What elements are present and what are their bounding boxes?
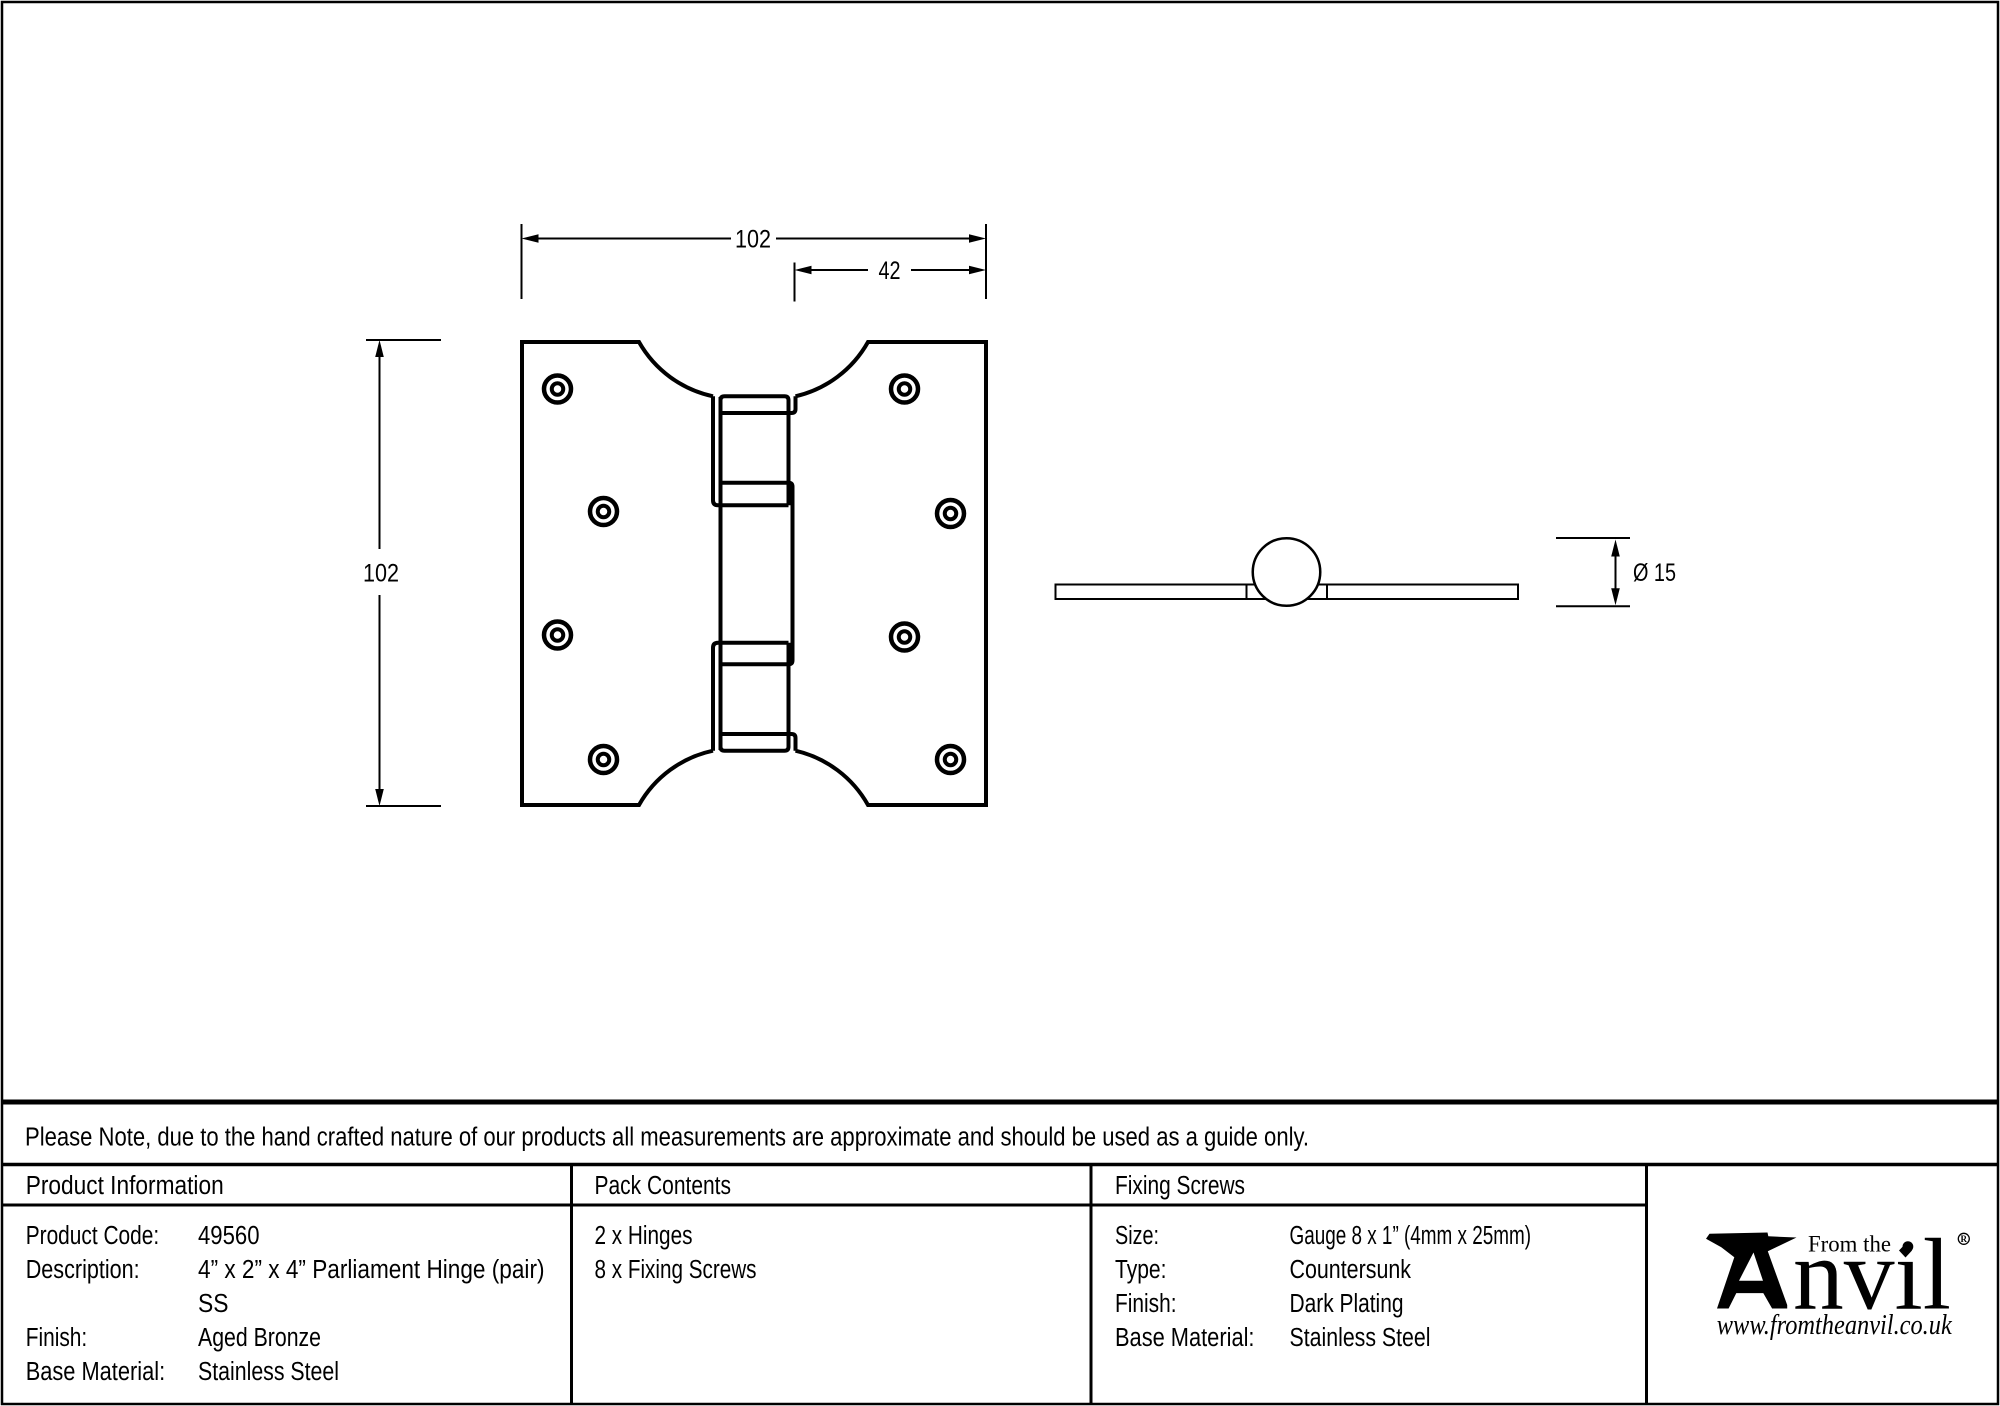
svg-text:Ø 15: Ø 15 xyxy=(1633,559,1676,587)
svg-text:Base Material:: Base Material: xyxy=(26,1358,166,1386)
svg-text:Product Code:: Product Code: xyxy=(26,1222,160,1250)
svg-text:8 x Fixing Screws: 8 x Fixing Screws xyxy=(595,1256,757,1284)
svg-text:R: R xyxy=(1961,1234,1968,1244)
svg-text:102: 102 xyxy=(363,559,399,587)
svg-text:Stainless Steel: Stainless Steel xyxy=(198,1358,339,1386)
svg-text:Finish:: Finish: xyxy=(1115,1290,1177,1318)
svg-text:www.fromtheanvil.co.uk: www.fromtheanvil.co.uk xyxy=(1717,1309,1953,1341)
svg-text:2 x Hinges: 2 x Hinges xyxy=(595,1222,693,1250)
svg-text:Please Note, due to the hand c: Please Note, due to the hand crafted nat… xyxy=(25,1123,1309,1151)
svg-text:Aged Bronze: Aged Bronze xyxy=(198,1324,321,1352)
svg-text:Finish:: Finish: xyxy=(26,1324,87,1352)
svg-text:Gauge 8 x 1” (4mm x 25mm): Gauge 8 x 1” (4mm x 25mm) xyxy=(1290,1222,1532,1250)
svg-text:102: 102 xyxy=(735,225,771,253)
svg-text:49560: 49560 xyxy=(198,1222,260,1250)
svg-text:Description:: Description: xyxy=(26,1256,140,1284)
svg-text:Fixing Screws: Fixing Screws xyxy=(1115,1172,1245,1200)
svg-text:Pack Contents: Pack Contents xyxy=(595,1172,732,1200)
svg-text:Type:: Type: xyxy=(1115,1256,1167,1284)
svg-text:Size:: Size: xyxy=(1115,1222,1159,1250)
svg-text:4” x 2” x 4” Parliament Hinge: 4” x 2” x 4” Parliament Hinge (pair) xyxy=(198,1256,545,1284)
svg-text:Countersunk: Countersunk xyxy=(1290,1256,1412,1284)
svg-text:42: 42 xyxy=(879,257,901,285)
svg-text:SS: SS xyxy=(198,1290,229,1318)
svg-text:Base Material:: Base Material: xyxy=(1115,1324,1255,1352)
svg-text:Dark Plating: Dark Plating xyxy=(1290,1290,1404,1318)
svg-text:Product Information: Product Information xyxy=(26,1172,224,1200)
svg-text:Stainless Steel: Stainless Steel xyxy=(1290,1324,1431,1352)
